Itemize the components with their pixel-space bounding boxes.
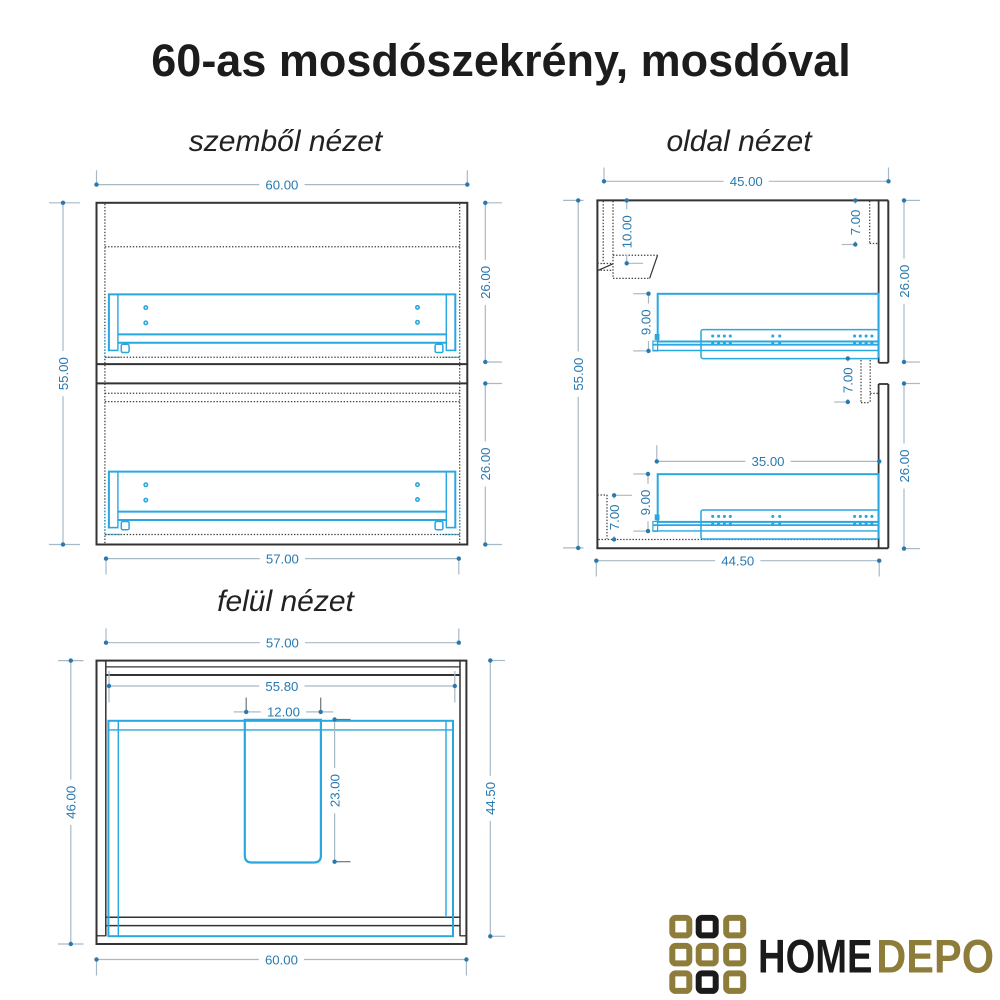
svg-text:35.00: 35.00: [751, 454, 784, 469]
svg-text:9.00: 9.00: [638, 309, 653, 335]
svg-text:26.00: 26.00: [897, 265, 912, 298]
svg-text:felül nézet: felül nézet: [217, 585, 355, 618]
svg-text:26.00: 26.00: [478, 266, 493, 299]
svg-text:9.00: 9.00: [638, 490, 653, 516]
svg-text:57.00: 57.00: [266, 636, 299, 651]
svg-text:12.00: 12.00: [267, 705, 300, 720]
svg-text:szemből nézet: szemből nézet: [189, 125, 384, 158]
svg-text:oldal nézet: oldal nézet: [666, 125, 813, 158]
svg-text:26.00: 26.00: [897, 450, 912, 483]
svg-text:44.50: 44.50: [721, 554, 754, 569]
svg-text:HOME: HOME: [758, 929, 873, 982]
svg-text:60.00: 60.00: [265, 952, 298, 967]
svg-text:DEPO: DEPO: [876, 929, 994, 982]
svg-text:45.00: 45.00: [730, 174, 763, 189]
svg-text:7.00: 7.00: [841, 367, 856, 393]
svg-text:46.00: 46.00: [64, 786, 79, 819]
svg-text:26.00: 26.00: [478, 447, 493, 480]
svg-text:23.00: 23.00: [327, 774, 342, 807]
svg-text:44.50: 44.50: [483, 782, 498, 815]
svg-text:55.00: 55.00: [571, 358, 586, 391]
svg-text:7.00: 7.00: [607, 505, 622, 531]
svg-text:55.00: 55.00: [56, 357, 71, 390]
svg-text:60.00: 60.00: [265, 177, 298, 192]
svg-text:60-as mosdószekrény, mosdóval: 60-as mosdószekrény, mosdóval: [151, 35, 850, 86]
svg-text:55.80: 55.80: [265, 679, 298, 694]
svg-text:7.00: 7.00: [848, 210, 863, 236]
svg-text:10.00: 10.00: [620, 215, 635, 248]
svg-text:57.00: 57.00: [266, 551, 299, 566]
